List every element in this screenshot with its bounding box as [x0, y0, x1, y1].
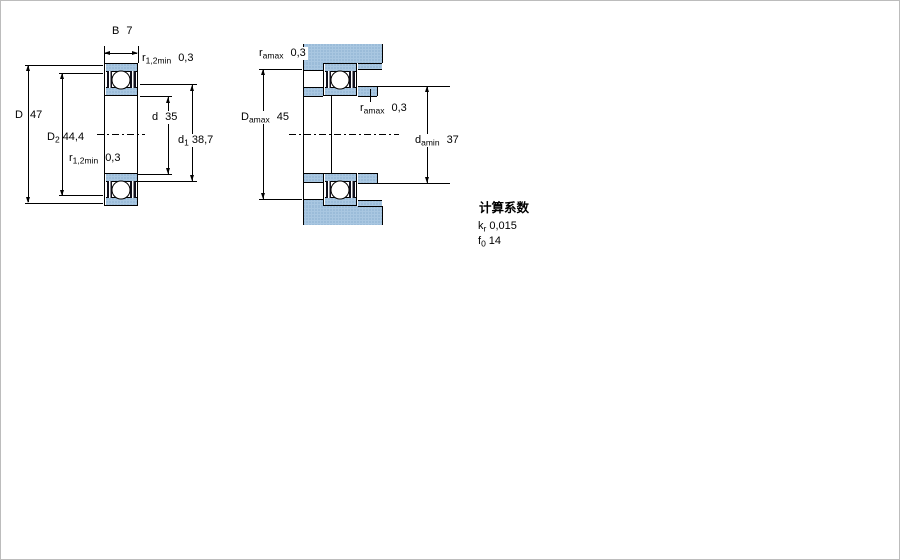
seal-right — [349, 181, 355, 198]
housing-shoulder-face-top-right — [358, 69, 382, 70]
label-D2: D244,4 — [47, 131, 84, 144]
label-B: B7 — [112, 25, 132, 38]
ext-line-D2-top — [59, 73, 103, 74]
arrowhead-d1-top — [190, 85, 194, 91]
label-D: D47 — [15, 109, 42, 122]
housing-shoulder-bottom-left — [303, 199, 323, 206]
ball — [331, 70, 350, 89]
arrowhead-D-bottom — [26, 197, 30, 203]
label-r12min-top: r1,2min0,3 — [142, 52, 193, 65]
housing-right-edge-bottom — [382, 206, 383, 225]
ext-line-B-right — [138, 46, 139, 63]
housing-bore-line-top-right — [358, 63, 382, 64]
bearing-section-top — [104, 63, 138, 96]
ext-line-damin-top — [358, 86, 450, 87]
ball — [331, 180, 350, 199]
dim-line-d — [168, 97, 169, 174]
label-d1: d138,7 — [176, 134, 215, 147]
label-ramax-top: ramax0,3 — [257, 47, 308, 60]
ball — [112, 70, 131, 89]
housing-block-bottom — [303, 206, 382, 225]
shaft-shoulder-bottom-left — [303, 173, 323, 182]
housing-shoulder-face-top-left — [303, 70, 323, 71]
housing-shoulder-top-left — [303, 63, 323, 70]
housing-shoulder-face-bottom-left — [303, 199, 323, 200]
ext-line-D-top — [25, 65, 103, 66]
ext-line-Damax-bottom — [259, 199, 302, 200]
arrowhead-damin-bottom — [425, 177, 429, 183]
shaft-bore-line-bottom-right — [358, 173, 377, 174]
calculation-factors-title: 计算系数 — [479, 197, 529, 216]
dim-line-Damax — [263, 69, 264, 199]
arrowhead-B-left — [104, 51, 110, 55]
bearing-dimension-drawing: B7 D47 D244,4 d35 d138,7 r1,2min0,3 r1,2… — [0, 0, 900, 560]
arrowhead-d-top — [166, 97, 170, 103]
housing-shoulder-face-bottom-right — [358, 200, 382, 201]
center-line — [289, 134, 399, 135]
ext-line-D-bottom — [25, 203, 103, 204]
label-r12min-bottom: r1,2min0,3 — [69, 152, 120, 165]
arrowhead-damin-top — [425, 86, 429, 92]
arrowhead-d-bottom — [166, 168, 170, 174]
shaft-shoulder-right-edge-top — [377, 86, 378, 96]
shoulder-face-plane-line — [331, 87, 332, 182]
seal-right — [349, 71, 355, 88]
shaft-shoulder-top-left — [303, 87, 323, 96]
ball — [112, 180, 131, 199]
leader-ramax-mid — [370, 89, 371, 102]
seal-right — [130, 181, 136, 198]
bearing-section-bottom — [104, 173, 138, 206]
ext-line-d1-top — [140, 84, 197, 85]
arrowhead-Damax-bottom — [261, 193, 265, 199]
label-Damax: Damax45 — [239, 111, 291, 124]
label-d: d35 — [150, 111, 179, 124]
housing-block-top — [303, 44, 382, 63]
shaft-bore-line-top-right — [358, 96, 377, 97]
label-damin: damin37 — [413, 134, 461, 147]
ext-line-D2-bottom — [59, 195, 103, 196]
arrowhead-D2-bottom — [60, 190, 64, 196]
bearing-section-bottom — [323, 173, 357, 206]
housing-right-edge-top — [382, 44, 383, 63]
arrowhead-B-right — [132, 51, 138, 55]
dim-line-d1 — [192, 85, 193, 181]
arrowhead-D2-top — [60, 73, 64, 79]
arrowhead-Damax-top — [261, 69, 265, 75]
ext-line-damin-bottom — [358, 183, 450, 184]
ext-line-d-bottom — [135, 174, 172, 175]
shaft-shoulder-top-right — [358, 86, 377, 96]
bearing-section-top — [323, 63, 357, 96]
arrowhead-D-top — [26, 65, 30, 71]
seal-right — [130, 71, 136, 88]
ext-line-Damax-top — [259, 69, 302, 70]
housing-bore-line-bottom-right — [358, 206, 382, 207]
factor-kr: kr0,015 — [478, 220, 517, 233]
label-ramax-mid: ramax0,3 — [360, 102, 407, 115]
bore-wall-right — [137, 96, 138, 173]
shaft-shoulder-bottom-right — [358, 173, 377, 183]
shaft-bore-line-bottom-left — [303, 173, 323, 174]
factor-f0: f014 — [478, 235, 501, 248]
shaft-bore-line-top-left — [303, 96, 323, 97]
housing-shaft-left-edge — [303, 44, 304, 225]
dim-line-D — [28, 66, 29, 202]
arrowhead-d1-bottom — [190, 175, 194, 181]
ext-line-d1-bottom — [138, 181, 197, 182]
shaft-shoulder-right-edge-bottom — [377, 173, 378, 183]
shaft-shoulder-edge-top-left — [303, 87, 323, 88]
shaft-shoulder-edge-bottom-left — [303, 182, 323, 183]
